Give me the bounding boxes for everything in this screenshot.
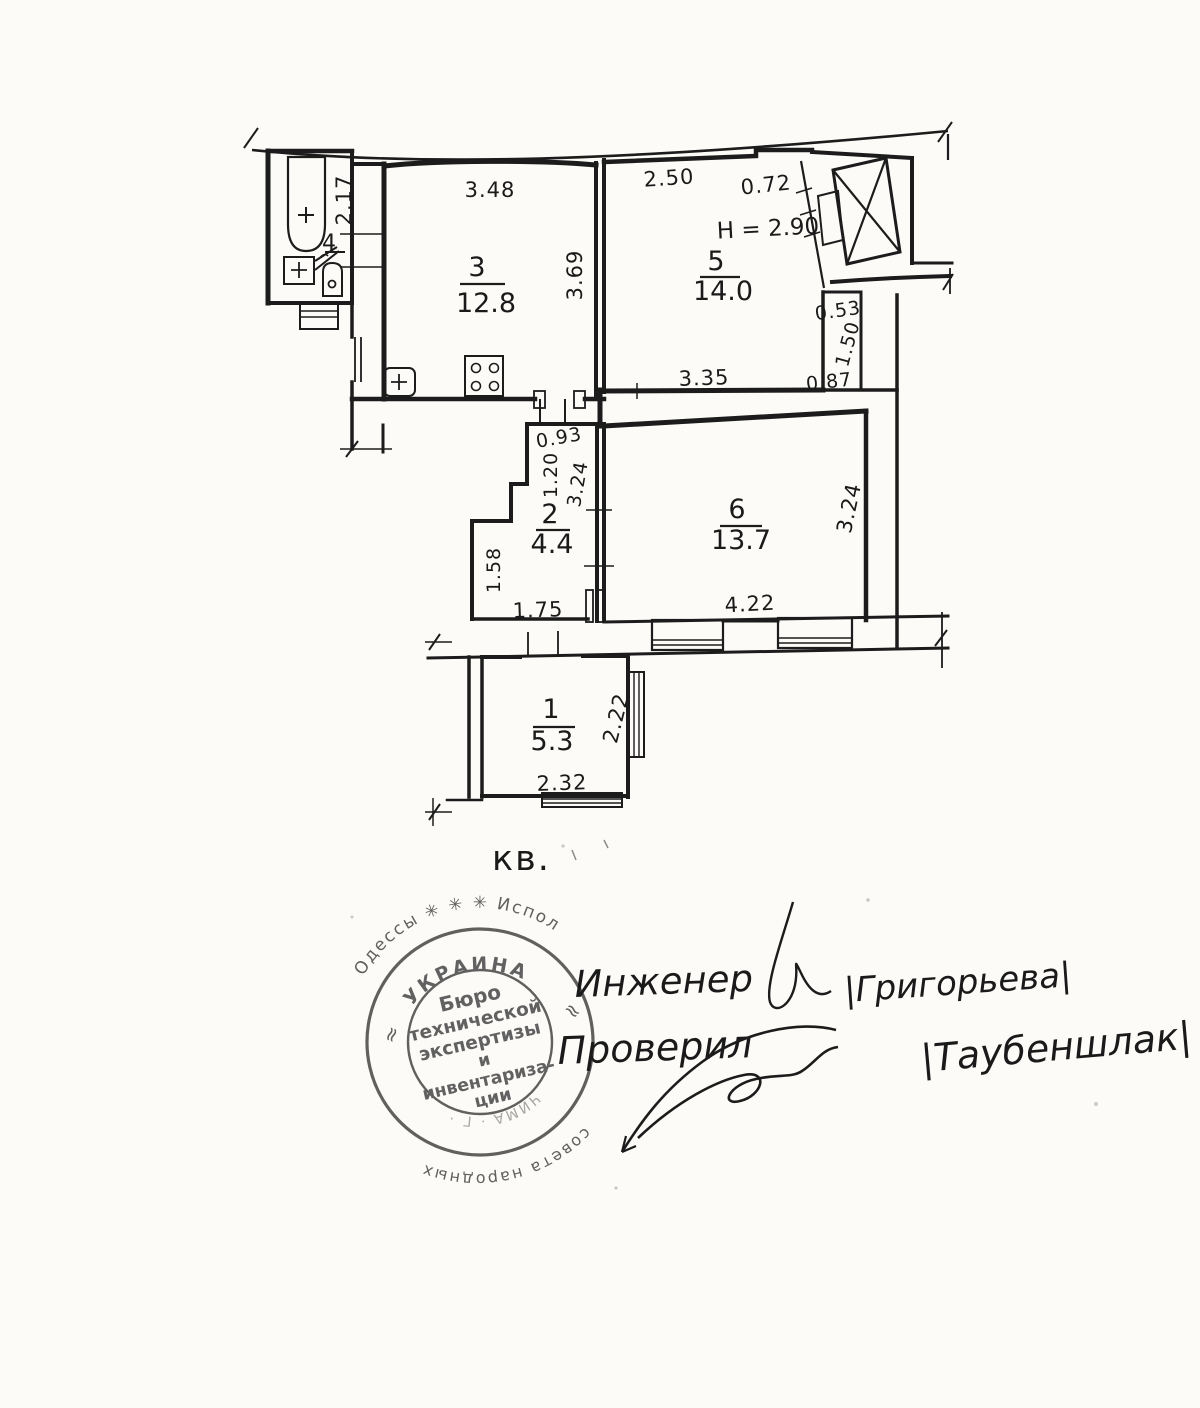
stamp-tilde-left: ≈ xyxy=(377,1022,406,1047)
dim-r5-top-right: 0.72 xyxy=(740,170,793,199)
ceiling-height-note: H = 2.90 xyxy=(716,213,820,244)
unit-label: кв. xyxy=(492,839,551,879)
kitchen-fixtures xyxy=(384,356,503,396)
dim-r2-right: 3.24 xyxy=(563,459,593,508)
dim-r2-left-lower: 1.58 xyxy=(483,547,505,593)
room-3-number: 3 xyxy=(468,252,485,283)
dim-r3-top: 3.48 xyxy=(465,178,516,202)
dim-r5-top-left: 2.50 xyxy=(643,164,695,191)
scanned-floor-plan-page: 3 12.8 5 14.0 6 13.7 2 4.4 1 5.3 4 H = 2… xyxy=(0,0,1200,1408)
engineer-name: |Григорьева| xyxy=(843,955,1073,1011)
room-6-walls xyxy=(425,411,948,668)
engineer-label: Инженер xyxy=(574,957,754,1006)
dim-r6-right: 3.24 xyxy=(832,481,866,536)
room-1-number: 1 xyxy=(542,694,559,725)
dim-r1-bottom: 2.32 xyxy=(536,770,588,796)
dim-nook-top: 0.53 xyxy=(814,297,863,325)
checked-name: |Таубеншлак| xyxy=(919,1013,1193,1081)
room-3-area: 12.8 xyxy=(456,288,516,319)
bath-window xyxy=(300,302,338,329)
toilet-icon xyxy=(323,263,342,296)
dim-r5-bottom: 3.35 xyxy=(678,365,730,391)
room-5-number: 5 xyxy=(707,246,724,277)
window xyxy=(628,672,644,757)
dim-r2-left-upper: 1.20 xyxy=(540,452,562,498)
dim-r2-bottom: 1.75 xyxy=(512,597,564,623)
dimension-labels: 2.17 3.48 3.69 2.50 0.72 3.35 0.53 1.50 … xyxy=(332,164,866,796)
room-4-number: 4 xyxy=(322,231,336,256)
room-2-number: 2 xyxy=(541,499,558,530)
room-2-area: 4.4 xyxy=(531,529,574,560)
dim-r2-top: 0.93 xyxy=(534,423,583,453)
room-5-area: 14.0 xyxy=(693,276,753,307)
room-1-area: 5.3 xyxy=(531,726,574,757)
engineer-signature xyxy=(769,902,831,1008)
svg-text:и: и xyxy=(476,1049,492,1071)
door-jamb xyxy=(586,590,593,622)
signature-block: Инженер |Григорьева| Проверил |Таубеншла… xyxy=(557,902,1194,1152)
bathtub-cross-icon xyxy=(298,207,314,223)
dim-bath-side: 2.17 xyxy=(332,175,356,226)
dim-r6-bottom: 4.22 xyxy=(724,591,776,618)
sink-cross-icon xyxy=(291,262,307,278)
dim-r3-right: 3.69 xyxy=(563,250,587,301)
room-6-area: 13.7 xyxy=(711,525,771,556)
bathtub-icon xyxy=(288,157,325,251)
room-5-walls xyxy=(600,134,953,648)
floor-plan-drawing: 3 12.8 5 14.0 6 13.7 2 4.4 1 5.3 4 H = 2… xyxy=(0,0,1200,1408)
room-6-number: 6 xyxy=(728,494,745,525)
bathroom-block-walls xyxy=(268,151,392,457)
svg-text:совета народных: совета народных xyxy=(415,1122,602,1206)
stamp-ring-bottom-text: совета народных xyxy=(415,1122,602,1206)
